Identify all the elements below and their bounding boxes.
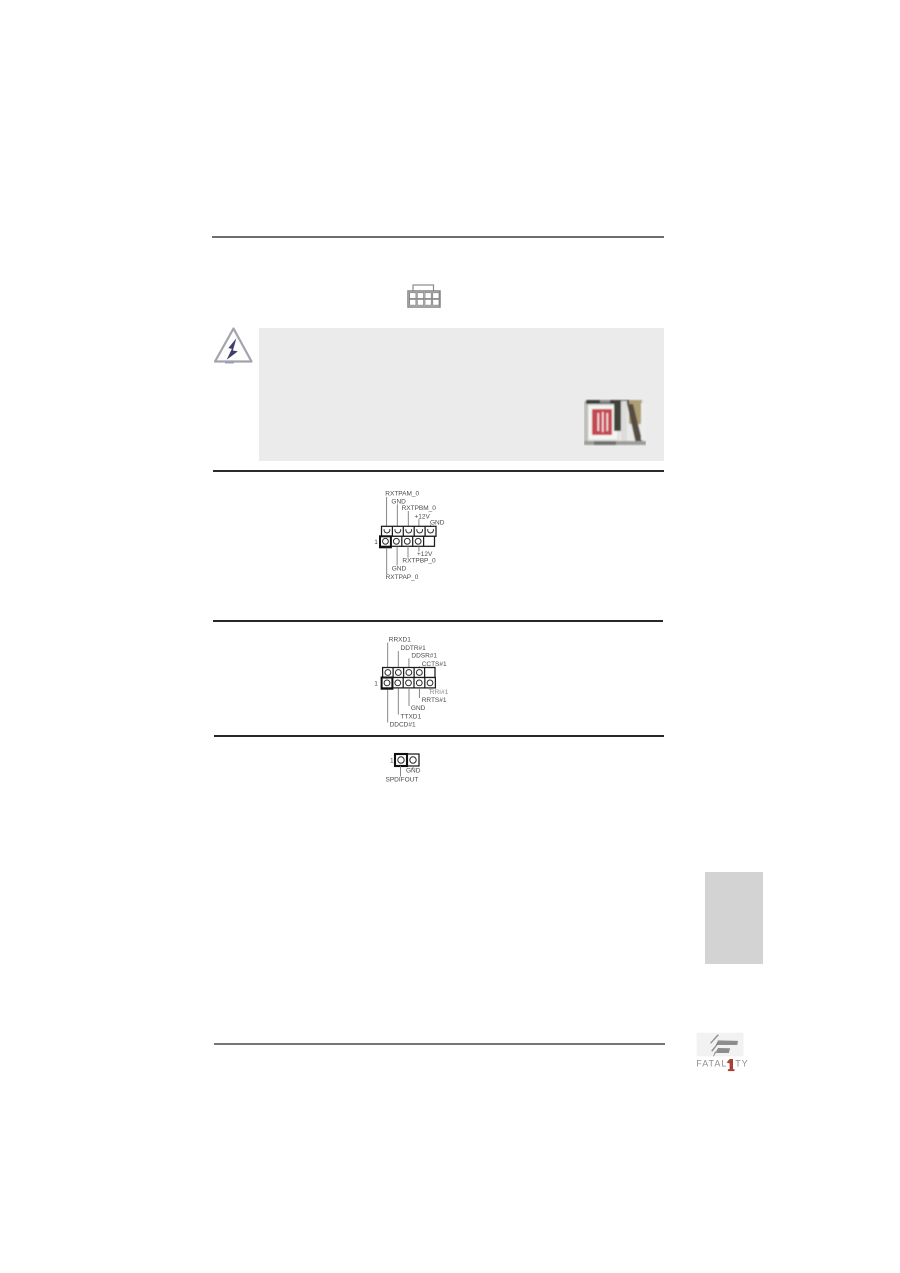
svg-text:1: 1 xyxy=(374,681,378,688)
svg-text:GND: GND xyxy=(406,768,421,775)
svg-text:CCTS#1: CCTS#1 xyxy=(422,661,447,668)
svg-text:1: 1 xyxy=(390,758,394,765)
svg-text:+12V: +12V xyxy=(415,514,431,521)
svg-text:RXTPBP_0: RXTPBP_0 xyxy=(402,557,436,564)
svg-text:FATAL: FATAL xyxy=(696,1058,727,1068)
svg-text:DDCD#1: DDCD#1 xyxy=(390,722,416,729)
svg-text:SPDIFOUT: SPDIFOUT xyxy=(386,776,419,783)
svg-text:DDSR#1: DDSR#1 xyxy=(411,653,437,660)
svg-text:RXTPAM_0: RXTPAM_0 xyxy=(385,491,419,498)
svg-text:GND: GND xyxy=(411,705,426,712)
svg-text:1: 1 xyxy=(374,539,378,546)
svg-text:RRI#1: RRI#1 xyxy=(430,689,449,696)
svg-text:RRXD1: RRXD1 xyxy=(389,637,411,644)
svg-text:TY: TY xyxy=(735,1058,749,1068)
svg-text:GND: GND xyxy=(430,519,445,526)
svg-text:RXTPAP_0: RXTPAP_0 xyxy=(386,574,419,581)
svg-text:DDTR#1: DDTR#1 xyxy=(401,645,427,652)
svg-text:GND: GND xyxy=(392,565,407,572)
svg-text:RRTS#1: RRTS#1 xyxy=(422,697,447,704)
svg-text:RXTPBM_0: RXTPBM_0 xyxy=(402,505,437,512)
svg-text:TTXD1: TTXD1 xyxy=(401,713,422,720)
